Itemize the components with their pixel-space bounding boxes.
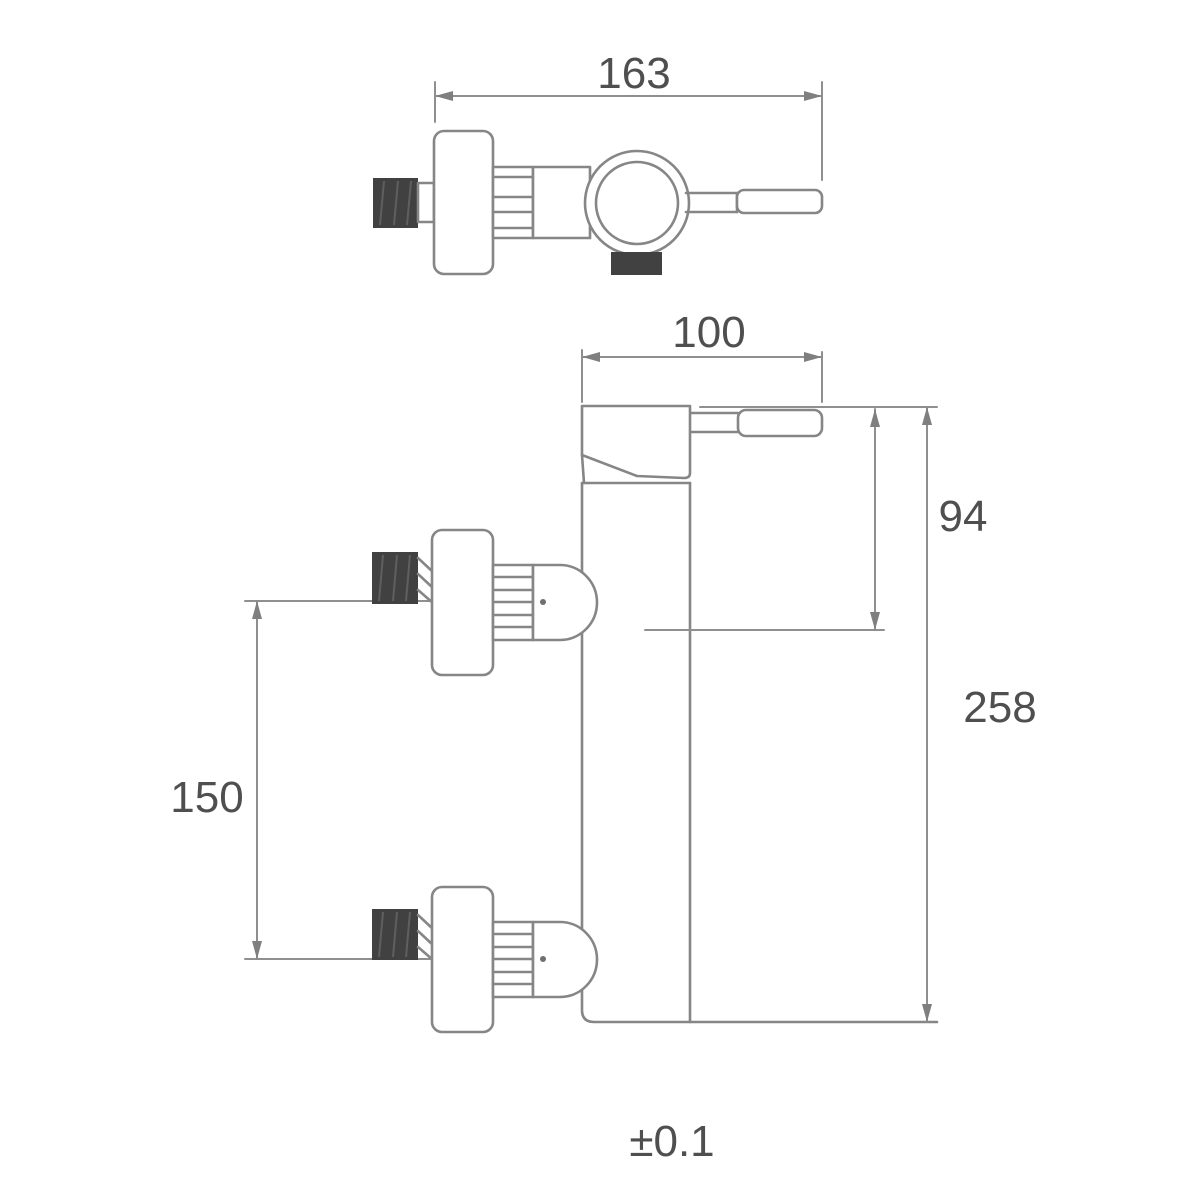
bottom-inlet-assembly: [372, 887, 597, 1032]
nipple-stub: [418, 183, 434, 222]
front-view: 100 94 258 150: [170, 308, 1036, 1032]
arrowhead-down: [870, 612, 880, 630]
dim-163-label: 163: [597, 49, 670, 98]
mixer-tap-dimension-drawing: 163: [0, 0, 1200, 1200]
handle-grip: [737, 190, 822, 213]
arrowhead-up: [922, 407, 932, 425]
dimension-head-width-100: 100: [582, 308, 822, 402]
arrowhead-left: [582, 352, 600, 362]
escutcheon-plate: [432, 530, 493, 675]
ribbed-nut: [493, 565, 533, 640]
valve-neck: [533, 167, 590, 238]
threaded-connector: [493, 167, 533, 238]
dim-258-label: 258: [963, 683, 1036, 732]
lever-handle-top-view: [686, 190, 822, 213]
dim-100-label: 100: [672, 308, 745, 357]
dim-94-label: 94: [939, 492, 988, 541]
valve-body: [585, 151, 689, 255]
cap-left-joint: [582, 455, 584, 483]
handle-grip: [738, 410, 822, 436]
arrowhead-up: [870, 409, 880, 427]
tolerance-note: ±0.1: [629, 1117, 714, 1166]
lever-handle-front-view: [691, 410, 822, 436]
mixer-body: [582, 483, 937, 1022]
arrowhead-up: [252, 601, 262, 619]
dim-150-label: 150: [170, 773, 243, 822]
arrowhead-down: [252, 941, 262, 959]
top-inlet-assembly: [372, 530, 597, 675]
escutcheon-plate: [432, 887, 493, 1032]
center-mark: [540, 956, 546, 962]
valve-body-outer: [585, 151, 689, 255]
arrowhead-down: [922, 1004, 932, 1022]
center-mark: [540, 599, 546, 605]
inlet-nipple-top-view: [373, 178, 434, 228]
arrowhead-left: [435, 91, 453, 101]
ribbed-nut: [493, 922, 533, 997]
technical-drawing-canvas: 163: [0, 0, 1200, 1200]
dimension-top-to-outlet-94: 94: [870, 409, 987, 630]
outlet-port: [611, 252, 662, 275]
escutcheon-plate: [434, 131, 493, 274]
arrowhead-right: [804, 91, 822, 101]
body-left-and-bottom-edge: [582, 483, 937, 1022]
top-view: 163: [373, 49, 822, 275]
cartridge-cap: [582, 406, 690, 478]
dimension-inlet-spacing-150: 150: [170, 601, 262, 959]
arrowhead-right: [804, 352, 822, 362]
